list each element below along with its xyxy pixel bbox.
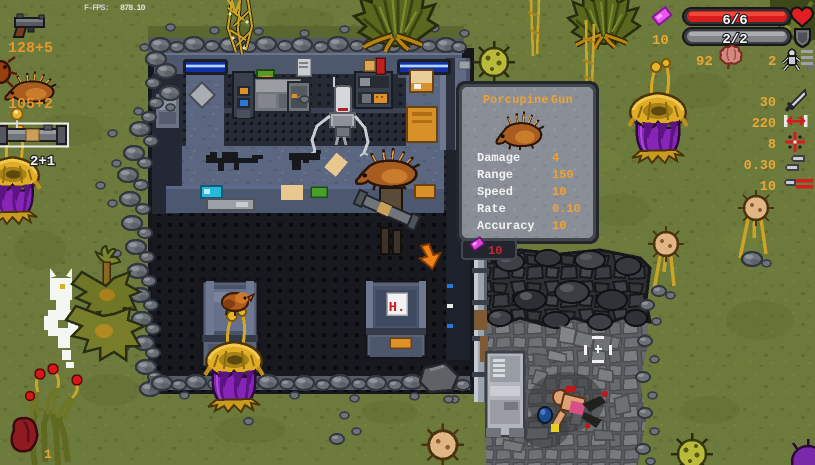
svg-text:Damage: Damage <box>477 151 520 165</box>
svg-text:2/2: 2/2 <box>722 32 747 48</box>
svg-text:10: 10 <box>760 180 776 195</box>
svg-text:8: 8 <box>768 138 776 153</box>
svg-text:150: 150 <box>552 168 574 182</box>
svg-text:128+5: 128+5 <box>8 40 53 57</box>
svg-text:F-FPS:: F-FPS: <box>84 3 109 13</box>
svg-text:2: 2 <box>768 54 776 70</box>
svg-text:1: 1 <box>44 447 52 462</box>
svg-text:H.: H. <box>389 300 406 316</box>
svg-text:220: 220 <box>752 117 776 132</box>
svg-text:Porcupine: Porcupine <box>483 94 549 107</box>
svg-text:10: 10 <box>488 244 502 258</box>
svg-text:Range: Range <box>477 168 513 182</box>
svg-text:10: 10 <box>552 185 566 199</box>
svg-text:878.10: 878.10 <box>120 3 146 13</box>
svg-text:0.30: 0.30 <box>744 159 776 174</box>
svg-text:Gun: Gun <box>551 94 573 107</box>
svg-text:Speed: Speed <box>477 185 513 199</box>
svg-text:6/6: 6/6 <box>722 13 747 29</box>
svg-text:30: 30 <box>760 96 776 111</box>
svg-text:2+1: 2+1 <box>30 154 55 170</box>
svg-text:0.10: 0.10 <box>552 202 581 216</box>
svg-text:92: 92 <box>696 54 713 70</box>
svg-text:Accuracy: Accuracy <box>477 219 535 233</box>
svg-text:10: 10 <box>552 219 566 233</box>
svg-text:4: 4 <box>552 151 559 165</box>
svg-text:Rate: Rate <box>477 202 506 216</box>
svg-text:10: 10 <box>652 33 669 49</box>
